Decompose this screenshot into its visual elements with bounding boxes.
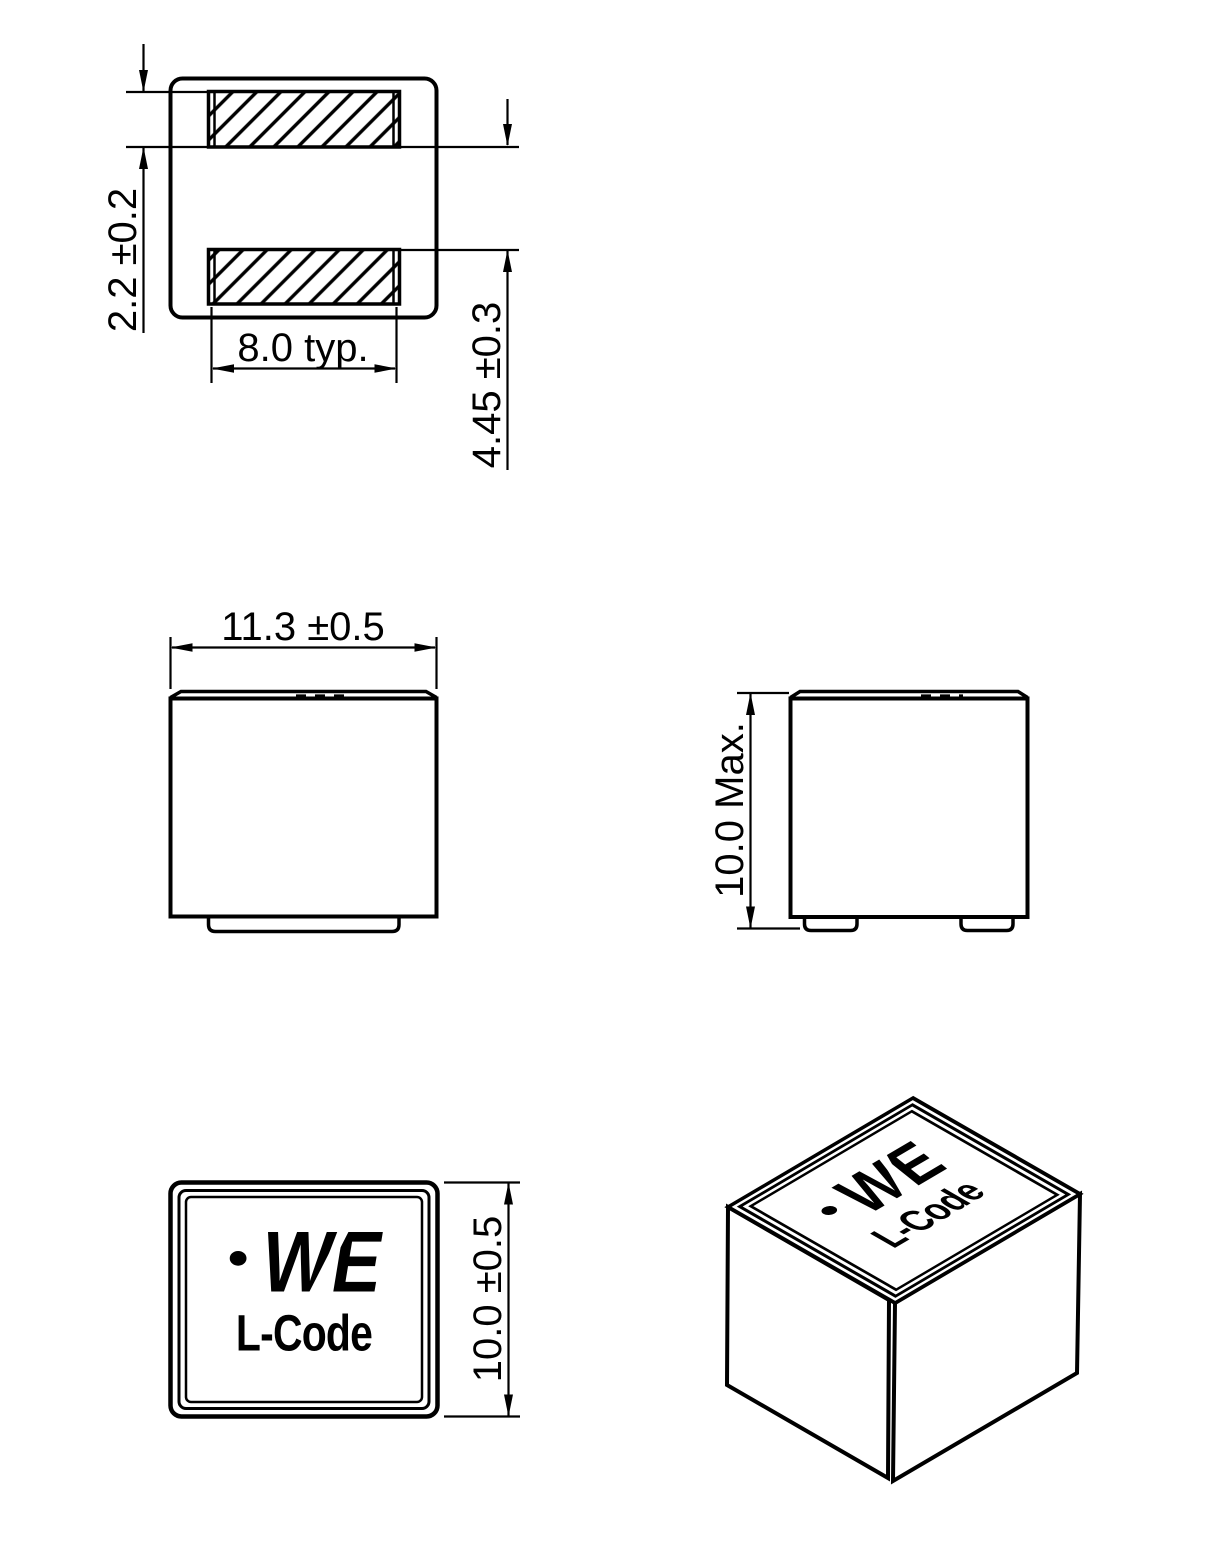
dim-body-height-label: 10.0 Max. [708, 722, 752, 898]
dim-pad-width-label: 8.0 typ. [237, 326, 368, 370]
solder-pad-top [209, 92, 400, 148]
solder-pad-bottom [209, 250, 400, 305]
technical-drawing: WE L-Code 2.2 ± [0, 0, 1229, 1558]
view-top: 10.0 ±0.5 [171, 1183, 521, 1417]
side-body-outline [791, 699, 1028, 918]
dim-pad-height-label: 2.2 ±0.2 [101, 188, 145, 332]
dim-body-depth-label: 10.0 ±0.5 [466, 1216, 510, 1383]
front-body-outline [171, 699, 437, 917]
dim-body-width-label: 11.3 ±0.5 [221, 605, 385, 649]
dim-pad-spacing-label: 4.45 ±0.3 [465, 302, 509, 469]
